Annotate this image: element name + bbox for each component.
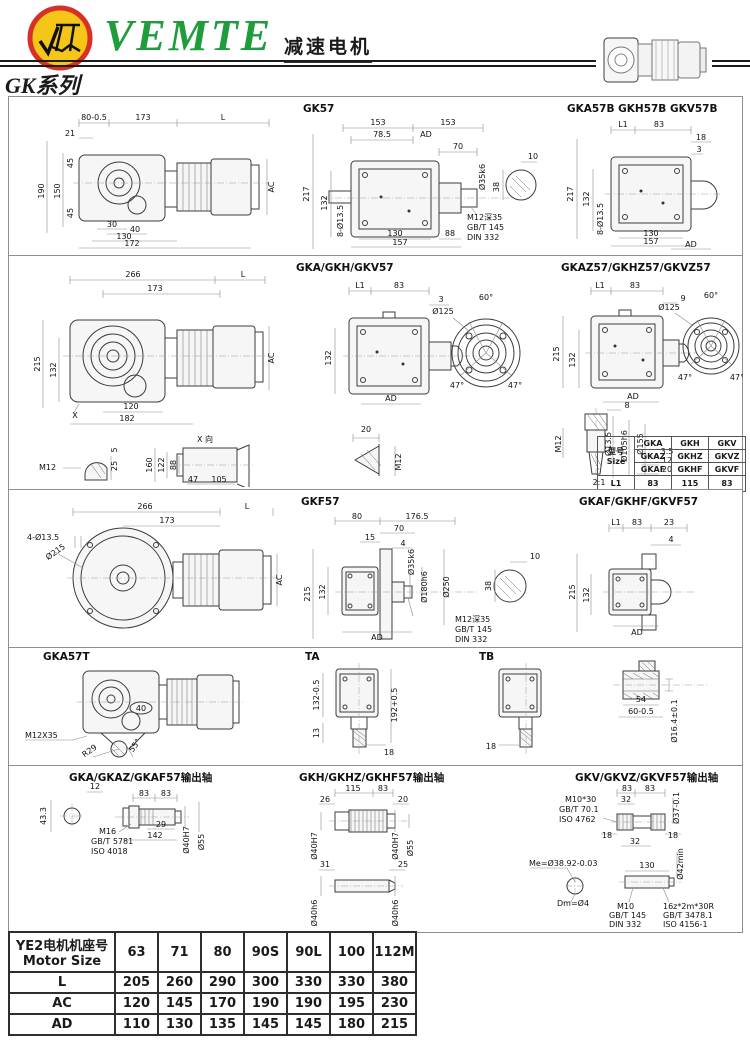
size-table: 型号 Size GKA GKH GKV GKAZ GKHZ GKVZ GKAF … [597,436,746,492]
dim-label: 130 [639,861,654,870]
dim-label: 132 [582,191,591,206]
frame-size: 80 [201,932,244,972]
dim-label: M12X35 [25,731,58,740]
note-label: M12深35 [467,213,502,222]
dim-label: 132 [49,362,58,377]
drawing-gka-output-shaft: GKA/GKAZ/GKAF57输出轴 12 83 83 43.3 M16 GB/… [15,768,285,929]
dim-label: 18 [668,831,678,840]
dim-label: L1 [618,120,628,129]
drawing-gkh-output-shaft: GKH/GKHZ/GKHF57输出轴 115 83 26 20 Ø40H7 Ø4… [285,768,517,929]
drawing-gka-side-view: 266 L 173 215 132 X 120 182 AC M12 5 25 … [15,258,291,487]
drawing-title: GK57 [303,103,334,115]
drawing-gka-gkh-gkv57: GKA/GKH/GKV57 L1 83 3 132 AD 60° Ø125 47… [291,258,547,487]
size-cell: GKVF [709,463,746,476]
dim-label: 215 [568,584,577,599]
dim-label: L1 [611,518,621,527]
dim-label: 29 [156,820,166,829]
dim-label: 217 [302,186,311,201]
dim-label: 4 [400,539,405,548]
dim-label: 83 [161,789,171,798]
value-cell: 290 [201,972,244,993]
drawing-title: GKA57T [43,651,90,663]
dim-label: 45 [66,158,75,168]
dim-label: 172 [124,239,139,248]
dim-label: 54 [636,695,646,704]
size-cell: GKVZ [709,450,746,463]
dim-label: L [241,270,246,279]
dim-label: 190 [37,183,46,198]
dim-label: 80 [352,512,362,521]
dim-label: Ø40H7 [390,832,400,860]
section-row-3: 266 L 173 4-Ø13.5 Ø215 AC GKF57 80 176.5… [8,489,743,649]
dim-label: 47° [678,373,692,382]
drawing-title: TA [305,651,320,663]
value-cell: 120 [115,993,158,1014]
note-label: M10*30 [565,795,596,804]
note-label: ISO 4018 [91,847,128,856]
value-cell: 110 [115,1014,158,1035]
dim-label: 4 [668,535,673,544]
dim-label: Ø40h6 [309,900,319,927]
dim-label: 192+0.5 [390,688,399,723]
drawing-ta-tb: TA 132-0.5 13 192+0.5 18 TB 18 [293,649,561,764]
page-header: VEMTE 减速电机 GK系列 [0,0,750,95]
brand-name: VEMTE [104,10,273,61]
frame-size: 71 [158,932,201,972]
dim-label: 150 [53,183,62,198]
dim-label: X [72,411,78,420]
dim-label: 20 [398,795,408,804]
drawing-gkf57-face-view: GKF57 80 176.5 70 15 4 215 132 Ø35k6 Ø18… [295,492,547,646]
dim-label: 153 [440,118,455,127]
size-cell: GKA [635,437,672,450]
dim-label: AD [371,633,383,642]
dim-label: 88 [169,460,178,470]
drawing-shaft-bush: 54 60-0.5 Ø16.4±0.1 [561,649,739,764]
dim-label: AC [267,352,276,363]
note-label: DIN 332 [609,920,641,929]
size-table-header-en: Size [601,457,631,466]
dim-label: 122 [157,457,166,472]
dim-label: 182 [119,414,134,423]
dim-label: 132 [582,587,591,602]
view-label: X 向 [197,434,213,444]
dim-label: 32 [621,795,631,804]
dim-label: 70 [453,142,463,151]
drawing-gk57-side-view: 80-0.5 173 L 21 190 150 45 45 30 40 130 … [17,99,289,253]
dim-label: 40 [136,704,146,713]
dim-label: AD [685,240,697,249]
section-row-1: 80-0.5 173 L 21 190 150 45 45 30 40 130 … [8,96,743,257]
dim-label: 60-0.5 [628,707,654,716]
size-cell: GKHF [672,463,709,476]
drawing-gk57b-view: GKA57B GKH57B GKV57B L1 83 18 3 217 132 … [559,99,741,253]
dim-label: 120 [123,402,138,411]
dim-label: 8-Ø13.5 [595,203,605,235]
dim-label: 18 [384,748,394,757]
dim-label: 83 [394,281,404,290]
drawing-title: GKA/GKH/GKV57 [296,262,394,274]
dim-label: 215 [552,346,561,361]
dim-label: 60° [479,293,493,302]
value-cell: 135 [201,1014,244,1035]
value-cell: 145 [287,1014,330,1035]
value-cell: 300 [244,972,287,993]
row-label: L [9,972,115,993]
value-cell: 145 [244,1014,287,1035]
dim-label: 88 [445,229,455,238]
dim-label: 55° [127,737,143,754]
dim-label: 266 [137,502,152,511]
dim-label: 47 [188,475,198,484]
dim-label: 132 [324,350,333,365]
value-cell: 230 [373,993,416,1014]
dim-label: Ø40H7 [309,832,319,860]
dim-label: 266 [125,270,140,279]
note-label: DIN 332 [467,233,499,242]
dim-label: 8 [624,401,629,410]
size-cell: GKAZ [635,450,672,463]
drawing-title: GKAZ57/GKHZ57/GKVZ57 [561,262,711,274]
dim-label: 45 [66,208,75,218]
drawing-gkaf57-view: GKAF/GKHF/GKVF57 L1 83 23 4 215 132 AD [549,492,741,646]
dim-label: 157 [643,237,658,246]
dim-label: 70 [394,524,404,533]
table-row: AC 120 145 170 190 190 195 230 [9,993,416,1014]
dim-label: Ø40h6 [390,900,400,927]
dim-label: 176.5 [406,512,429,521]
dim-label: 173 [147,284,162,293]
drawing-title: GKV/GKVZ/GKVF57输出轴 [575,771,718,784]
dim-label: 132 [320,195,329,210]
dim-label: 3 [696,145,701,154]
gearmotor-thumbnail-icon [596,24,712,90]
frame-size: 100 [330,932,373,972]
section-row-2: 266 L 173 215 132 X 120 182 AC M12 5 25 … [8,255,743,491]
value-cell: 145 [158,993,201,1014]
dim-label: M12 [554,435,563,452]
doc-title: 减速电机 [284,32,372,63]
dim-label: 3 [438,295,443,304]
dim-label: 12 [90,782,100,791]
drawing-title: GKH/GKHZ/GKHF57输出轴 [299,771,444,784]
dim-label: 23 [664,518,674,527]
frame-size: 63 [115,932,158,972]
dim-label: 5 [110,447,119,452]
value-cell: 330 [330,972,373,993]
dim-label: AC [267,181,276,192]
note-label: GB/T 70.1 [559,805,599,814]
dim-label: 43.3 [39,807,48,825]
dim-label: L1 [355,281,365,290]
size-table-header: 型号 Size [598,437,635,476]
dim-label: 32 [630,837,640,846]
note-label: M12深35 [455,615,490,624]
dim-label: Ø40H7 [181,826,191,854]
dim-label: AD [385,394,397,403]
value-cell: 190 [287,993,330,1014]
value-cell: 215 [373,1014,416,1035]
dim-label: 173 [159,516,174,525]
dim-label: 78.5 [373,130,391,139]
drawing-gka57t: GKA57T M12X35 R29 55° 40 [15,649,293,764]
drawing-gk57-face-view: GK57 153 153 78.5 AD 70 Ø35k6 217 132 8-… [293,99,551,253]
note-label: 16z*2m*30R [663,902,714,911]
dim-label: 10 [528,152,538,161]
dim-label: Ø35k6 [406,549,416,575]
dim-label: 13 [312,728,321,738]
note-label: GB/T 145 [609,911,646,920]
dim-label: 31 [320,860,330,869]
dim-label: 217 [566,186,575,201]
dim-label: 173 [135,113,150,122]
dim-label: Ø55 [196,834,206,850]
size-cell: GKAF [635,463,672,476]
dim-label: Ø125 [658,302,680,312]
size-cell: GKH [672,437,709,450]
dim-label: L1 [595,281,605,290]
size-cell: GKHZ [672,450,709,463]
dim-label: 83 [645,784,655,793]
value-cell: 330 [287,972,330,993]
dim-label: 105 [211,475,226,484]
dim-label: Ø35k6 [477,164,487,190]
dim-label: Ø37-0.1 [671,792,681,824]
dim-label: 83 [630,281,640,290]
table-row: AD 110 130 135 145 145 180 215 [9,1014,416,1035]
dim-label: AD [627,392,639,401]
dim-label: 9 [680,294,685,303]
dim-label: 38 [492,182,501,192]
dim-label: Ø16.4±0.1 [669,699,679,743]
dim-label: 157 [392,238,407,247]
dim-label: AD [420,130,432,139]
dim-label: Me=Ø38.92-0.03 [529,858,597,868]
dim-label: Dm=Ø4 [557,898,589,908]
value-cell: 380 [373,972,416,993]
value-cell: 205 [115,972,158,993]
row-label: AC [9,993,115,1014]
drawing-gkf-side-view: 266 L 173 4-Ø13.5 Ø215 AC [15,492,295,646]
dim-label: 47° [508,381,522,390]
dim-label: Ø55 [405,840,415,856]
dim-label: 83 [654,120,664,129]
dim-label: 25 [110,461,119,471]
dim-label: 132 [318,584,327,599]
dim-label: 25 [398,860,408,869]
dim-label: 26 [320,795,330,804]
dim-label: 115 [345,784,360,793]
drawing-title: TB [479,651,494,663]
dim-label: 130 [387,229,402,238]
value-cell: 180 [330,1014,373,1035]
value-cell: 260 [158,972,201,993]
dim-label: 83 [632,518,642,527]
dim-label: 215 [33,356,42,371]
dim-label: 83 [139,789,149,798]
motor-table-header: YE2电机机座号 Motor Size [9,932,115,972]
dim-label: Ø125 [432,306,454,316]
dim-label: M12 [394,453,403,470]
note-label: M16 [99,827,116,836]
note-label: ISO 4156-1 [663,920,708,929]
dim-label: 21 [65,129,75,138]
dim-label: 153 [370,118,385,127]
motor-table-header-cn: YE2电机机座号 [10,935,114,954]
note-label: GB/T 145 [455,625,492,634]
note-label: GB/T 5781 [91,837,133,846]
dim-label: 4-Ø13.5 [27,532,59,542]
dim-label: 160 [145,457,154,472]
dim-label: 132 [568,352,577,367]
table-row: YE2电机机座号 Motor Size 63 71 80 90S 90L 100… [9,932,416,972]
dim-label: 47° [450,381,464,390]
drawing-title: GKAF/GKHF/GKVF57 [579,496,698,508]
dim-label: 215 [303,586,312,601]
dim-label: 38 [484,581,493,591]
dim-label: 60° [704,291,718,300]
motor-size-table: YE2电机机座号 Motor Size 63 71 80 90S 90L 100… [8,931,417,1036]
value-cell: 130 [158,1014,201,1035]
dim-label: 30 [107,220,117,229]
note-label: GB/T 3478.1 [663,911,713,920]
section-row-5: GKA/GKAZ/GKAF57输出轴 12 83 83 43.3 M16 GB/… [8,765,743,933]
dim-label: L [245,502,250,511]
size-table-header-cn: 型号 [601,446,631,457]
dim-label: Ø215 [44,541,67,562]
dim-label: 18 [486,742,496,751]
dim-label: Ø250 [441,576,451,598]
dim-label: 80-0.5 [81,113,107,122]
dim-label: AD [631,628,643,637]
value-cell: 170 [201,993,244,1014]
note-label: GB/T 145 [467,223,504,232]
drawing-title: GKA57B GKH57B GKV57B [567,103,717,115]
note-label: M10 [617,902,634,911]
dim-label: 18 [696,133,706,142]
frame-size: 90S [244,932,287,972]
dim-label: L [221,113,226,122]
size-cell: GKV [709,437,746,450]
dim-label: AC [275,574,284,585]
drawing-gkv-output-shaft: GKV/GKVZ/GKVF57输出轴 M10*30 GB/T 70.1 ISO … [517,768,741,929]
frame-size: 112M [373,932,416,972]
dim-label: 132-0.5 [312,680,321,711]
motor-table-header-en: Motor Size [10,954,114,969]
table-row: L 205 260 290 300 330 330 380 [9,972,416,993]
dim-label: Ø42min [675,848,685,880]
value-cell: 195 [330,993,373,1014]
table-row: 型号 Size GKA GKH GKV [598,437,746,450]
drawing-title: GKF57 [301,496,340,508]
dim-label: 47° [730,373,743,382]
dim-label: Ø180h6 [419,571,429,603]
dim-label: 10 [530,552,540,561]
section-row-4: GKA57T M12X35 R29 55° 40 TA 132-0.5 13 1… [8,647,743,767]
dim-label: 83 [622,784,632,793]
note-label: ISO 4762 [559,815,596,824]
row-label: AD [9,1014,115,1035]
dim-label: R29 [81,743,99,759]
dim-label: 83 [378,784,388,793]
dim-label: 8-Ø13.5 [335,205,345,237]
dim-label: 142 [147,831,162,840]
dim-label: 15 [365,533,375,542]
dim-label: 18 [602,831,612,840]
note-label: DIN 332 [455,635,487,644]
dim-label: 20 [361,425,371,434]
dim-label: M12 [39,463,56,472]
frame-size: 90L [287,932,330,972]
value-cell: 190 [244,993,287,1014]
